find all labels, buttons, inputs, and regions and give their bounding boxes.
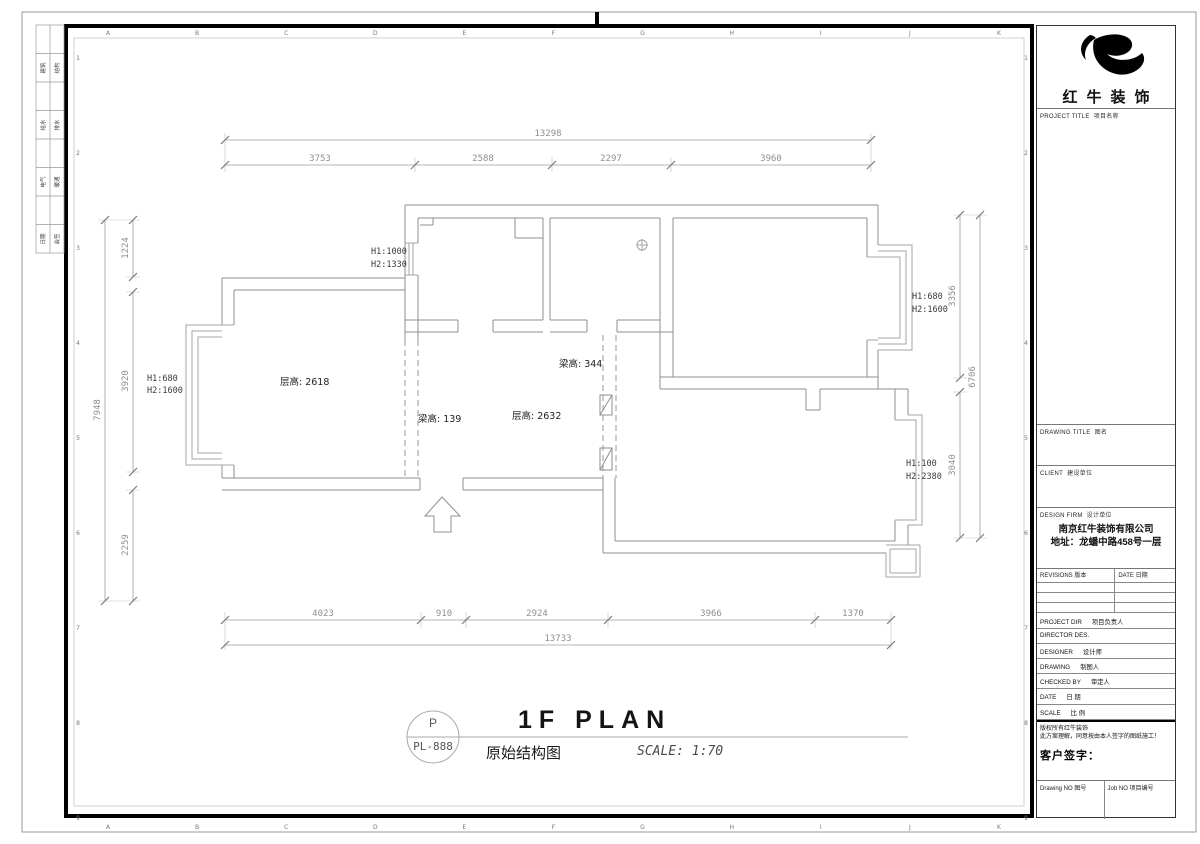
personnel-en: CHECKED BY: [1040, 679, 1081, 686]
dim-left-seg: 2259: [121, 534, 131, 556]
strip-label: 日期: [40, 233, 47, 245]
job-no-label: Job NO 项目编号: [1105, 781, 1175, 819]
drawing-sheet: 建筑 结构 给水 排水 电气 暖通 日期 会签 AABBCCDDEEFFGGHH…: [0, 0, 1200, 844]
grid-number-left: 8: [76, 720, 80, 727]
project-title-en: PROJECT TITLE: [1040, 114, 1090, 120]
dim-bottom-seg: 3966: [700, 609, 722, 619]
grid-number-left: 3: [76, 245, 80, 252]
dim-top-seg: 3753: [309, 154, 331, 164]
strip-label: 结构: [53, 62, 61, 74]
personnel-row: DESIGNER设计师: [1037, 644, 1175, 659]
grid-letter-bottom: I: [820, 824, 822, 831]
grid-letter-bottom: H: [729, 824, 734, 831]
grid-number-right: 5: [1024, 435, 1028, 442]
dim-bottom-seg: 4023: [312, 609, 334, 619]
grid-letter-bottom: J: [908, 824, 911, 831]
grid-letter-bottom: G: [640, 824, 645, 831]
grid-letter-top: K: [997, 30, 1002, 37]
grid-letter-bottom: E: [463, 824, 467, 831]
grid-letter-top: F: [552, 30, 556, 37]
dim-top-seg: 3960: [760, 154, 782, 164]
project-title-section: PROJECT TITLE项目名称: [1037, 109, 1175, 425]
project-title-cn: 项目名称: [1094, 114, 1119, 120]
personnel-cn: 日 期: [1066, 694, 1080, 701]
dim-bottom-total: 13733: [544, 634, 571, 644]
window-label: H1:680: [147, 374, 178, 384]
personnel-section: PROJECT DIR项目负责人 DIRECTOR DES. DESIGNER设…: [1037, 614, 1175, 720]
grid-letter-top: I: [820, 30, 822, 37]
window-label: H2:1600: [912, 305, 948, 315]
personnel-cn: 比 例: [1071, 710, 1085, 717]
personnel-en: SCALE: [1040, 710, 1061, 717]
door-symbol: [600, 395, 612, 470]
window-label: H1:680: [912, 292, 943, 302]
signoff-strip: 建筑 结构 给水 排水 电气 暖通 日期 会签: [36, 25, 64, 253]
client-en: CLIENT: [1040, 471, 1063, 477]
personnel-en: DIRECTOR DES.: [1040, 632, 1089, 639]
dim-left-seg: 3920: [121, 370, 131, 392]
grid-number-left: 1: [76, 55, 80, 62]
strip-label: 电气: [39, 176, 47, 188]
personnel-en: DRAWING: [1040, 664, 1070, 671]
grid-number-left: 5: [76, 435, 80, 442]
grid-letter-top: D: [373, 30, 378, 37]
grid-letter-bottom: C: [284, 824, 288, 831]
grid-number-left: 6: [76, 530, 80, 537]
numbers-section: Drawing NO 图号 Job NO 项目编号: [1037, 781, 1175, 819]
floor-plan-walls: [186, 205, 922, 577]
strip-label: 会签: [53, 233, 61, 245]
personnel-row: SCALE比 例: [1037, 705, 1175, 720]
grid-letter-bottom: K: [997, 824, 1002, 831]
grid-number-right: 7: [1024, 625, 1028, 632]
grid-number-right: 1: [1024, 55, 1028, 62]
entry-arrow: [425, 497, 460, 532]
strip-label: 排水: [53, 119, 61, 131]
grid-letter-top: J: [908, 30, 911, 37]
marker-letter: P: [407, 716, 459, 730]
dim-bottom-seg: 2924: [526, 609, 548, 619]
brand-section: 红牛装饰: [1037, 26, 1175, 109]
dim-left-total: 7948: [93, 399, 103, 421]
grid-number-right: 8: [1024, 720, 1028, 727]
dim-bottom-seg: 1370: [842, 609, 864, 619]
plan-title-en: 1F PLAN: [518, 706, 671, 735]
plan-scale: SCALE: 1:70: [637, 744, 723, 759]
grid-number-left: 2: [76, 150, 80, 157]
window-label: H2:1330: [371, 260, 407, 270]
dim-right-seg: 3040: [948, 454, 958, 476]
grid-number-left: 4: [76, 340, 80, 347]
firm-name: 南京红牛装饰有限公司: [1037, 523, 1175, 536]
design-firm-cn: 设计单位: [1087, 513, 1112, 519]
grid-number-right: 3: [1024, 245, 1028, 252]
personnel-cn: 审定人: [1091, 679, 1110, 686]
signature-section: 版权所有红牛装饰 此方案理解，同意按由本人签字的图纸施工！ 客户签字：: [1037, 720, 1175, 781]
window-label: H2:2380: [906, 472, 942, 482]
grid-number-right: 4: [1024, 340, 1028, 347]
grid-letter-top: G: [640, 30, 645, 37]
personnel-row: DATE日 期: [1037, 689, 1175, 704]
grid-letter-bottom: F: [552, 824, 556, 831]
plan-title-cn: 原始结构图: [486, 742, 561, 763]
drawing-no-label: Drawing NO 图号: [1037, 781, 1105, 819]
strip-label: 建筑: [39, 62, 47, 74]
personnel-row: DRAWING制图人: [1037, 659, 1175, 674]
grid-number-right: 9: [1024, 815, 1028, 822]
beam-label-1: 梁高: 139: [418, 413, 461, 425]
design-firm-section: DESIGN FIRM设计单位 南京红牛装饰有限公司 地址：龙蟠中路458号一层: [1037, 508, 1175, 569]
grid-letter-top: C: [284, 30, 288, 37]
room-label-living: 层高: 2618: [280, 376, 329, 388]
personnel-cn: 制图人: [1080, 664, 1099, 671]
window-label: H1:100: [906, 459, 937, 469]
personnel-row: CHECKED BY审定人: [1037, 674, 1175, 689]
rednbull-logo-icon: [1037, 28, 1175, 84]
design-firm-en: DESIGN FIRM: [1040, 513, 1083, 519]
client-cn: 建设单位: [1067, 471, 1092, 477]
personnel-en: PROJECT DIR: [1040, 619, 1082, 626]
date-header: DATE 日期: [1115, 569, 1175, 582]
dim-top-seg: 2588: [472, 154, 494, 164]
window-label: H1:1000: [371, 247, 407, 257]
personnel-cn: 项目负责人: [1092, 619, 1123, 626]
strip-label: 给水: [39, 119, 47, 131]
grid-letter-top: A: [106, 30, 111, 37]
dim-right-seg: 3356: [948, 285, 958, 307]
dim-top-total: 13298: [534, 129, 561, 139]
copyright-line2: 此方案理解，同意按由本人签字的图纸施工！: [1040, 733, 1173, 741]
personnel-en: DATE: [1040, 694, 1056, 701]
room-label-dining: 层高: 2632: [512, 410, 561, 422]
beam-label-2: 梁高: 344: [559, 358, 602, 370]
brand-name: 红牛装饰: [1037, 86, 1175, 107]
revisions-header: REVISIONS 版本: [1037, 569, 1115, 582]
strip-label: 暖通: [53, 176, 61, 188]
grid-letter-top: B: [195, 30, 199, 37]
drawing-title-cn: 图名: [1095, 430, 1108, 436]
grid-number-right: 2: [1024, 150, 1028, 157]
marker-code: PL-888: [407, 740, 459, 753]
client-section: CLIENT建设单位: [1037, 466, 1175, 508]
window-label: H2:1600: [147, 386, 183, 396]
dim-bottom-seg: 910: [436, 609, 452, 619]
drawing-title-en: DRAWING TITLE: [1040, 430, 1091, 436]
personnel-row: DIRECTOR DES.: [1037, 629, 1175, 644]
dim-right-total: 6706: [968, 366, 978, 388]
copyright-line1: 版权所有红牛装饰: [1040, 725, 1173, 733]
title-block: 红牛装饰 PROJECT TITLE项目名称 DRAWING TITLE图名 C…: [1036, 25, 1176, 818]
grid-letter-bottom: A: [106, 824, 111, 831]
grid-letter-top: H: [729, 30, 734, 37]
floor-drain-icon: [636, 239, 648, 251]
plan-labels: 层高: 2618 梁高: 139 层高: 2632 梁高: 344 H1:680…: [147, 247, 948, 482]
grid-letter-top: E: [463, 30, 467, 37]
grid-letter-bottom: D: [373, 824, 378, 831]
fold-mark: [595, 12, 599, 26]
dim-top-seg: 2297: [600, 154, 622, 164]
personnel-en: DESIGNER: [1040, 649, 1073, 656]
grid-letter-bottom: B: [195, 824, 199, 831]
personnel-row: PROJECT DIR项目负责人: [1037, 614, 1175, 629]
revisions-section: REVISIONS 版本 DATE 日期: [1037, 569, 1175, 614]
client-signature-label: 客户签字：: [1037, 741, 1175, 763]
drawing-title-section: DRAWING TITLE图名: [1037, 425, 1175, 466]
firm-address: 地址：龙蟠中路458号一层: [1037, 536, 1175, 549]
grid-number-right: 6: [1024, 530, 1028, 537]
grid-number-left: 9: [76, 815, 80, 822]
grid-number-left: 7: [76, 625, 80, 632]
personnel-cn: 设计师: [1083, 649, 1102, 656]
dim-left-seg: 1224: [121, 237, 131, 259]
